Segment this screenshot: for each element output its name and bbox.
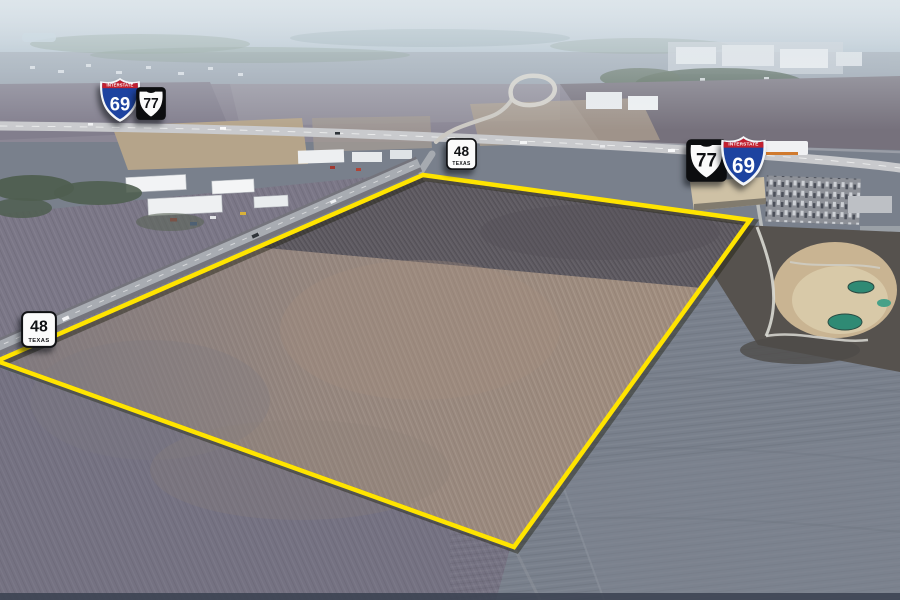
- haze-overlay: [0, 0, 900, 130]
- bottom-edge-band: [0, 593, 900, 600]
- pond-small: [877, 299, 891, 307]
- pond-upper: [848, 281, 874, 293]
- quarry-pit: [712, 225, 900, 372]
- aerial-photo: INTERSTATE 69 77 48 TEXAS 77 INTERSTATE …: [0, 0, 900, 600]
- pond-lower: [828, 314, 862, 330]
- aerial-landscape: [0, 0, 900, 600]
